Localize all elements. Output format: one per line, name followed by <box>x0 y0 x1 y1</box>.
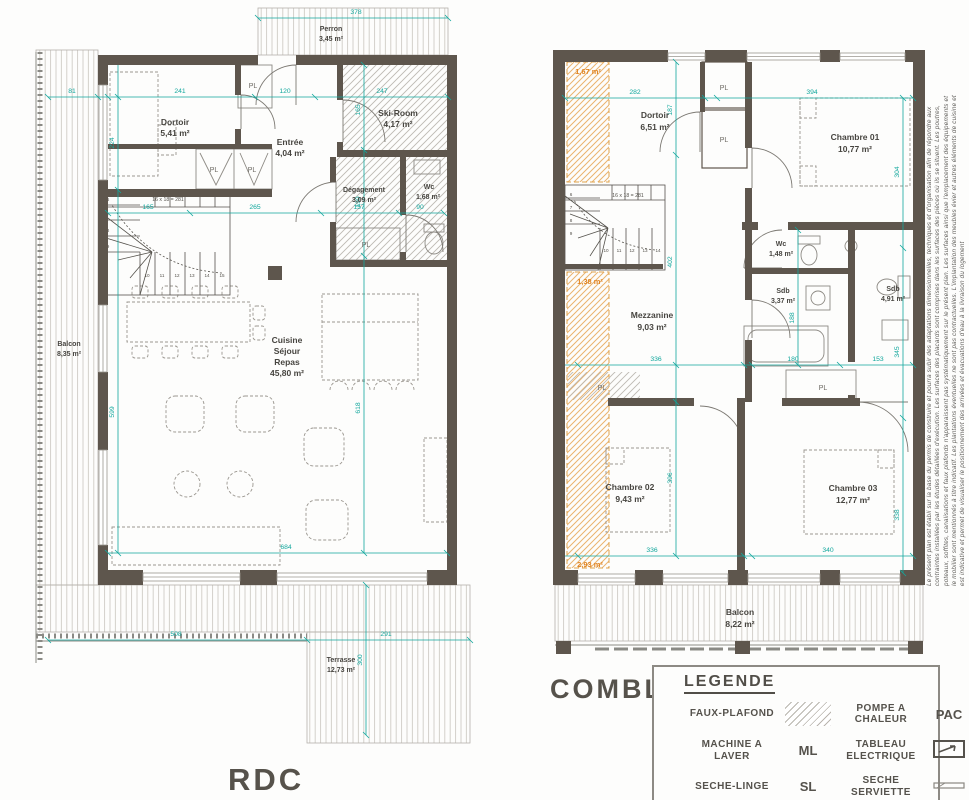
closet-label: PL <box>249 83 258 90</box>
room-area: 3,37 m² <box>771 298 796 305</box>
step-number: 10 <box>603 248 609 253</box>
bar-stools <box>330 381 414 390</box>
room-label: Sdb <box>886 286 899 293</box>
faux-plafond-area: 1,67 m² <box>575 67 601 76</box>
side-table-round <box>174 471 200 497</box>
legend-label: FAUX-PLAFOND <box>684 708 780 720</box>
room-label: Entrée <box>277 137 304 147</box>
dim: 81 <box>68 88 76 95</box>
toilet-tank <box>898 276 910 298</box>
armchair <box>306 500 348 540</box>
step-number: 12 <box>174 273 180 278</box>
legend-symbol: SL <box>780 779 836 794</box>
legend-title: LEGENDE <box>684 673 775 694</box>
room-label: Cuisine <box>272 335 303 345</box>
step-number: 14 <box>204 273 210 278</box>
room-area: 4,04 m² <box>275 148 304 158</box>
armchair <box>166 396 204 432</box>
terrace-deck-band <box>36 585 470 632</box>
dining-chairs <box>132 286 265 358</box>
towel-radiator-icon <box>926 779 969 794</box>
room-area: 4,17 m² <box>383 119 412 129</box>
dim: 599 <box>109 406 116 418</box>
dim: 684 <box>280 544 292 551</box>
disclaimer-text: Le présent plan est établi sur la base d… <box>926 38 967 586</box>
armchair <box>236 396 274 432</box>
terrace-deck-ext <box>307 632 470 743</box>
dim: 402 <box>667 256 674 268</box>
dim: 396 <box>667 472 674 484</box>
room-label: Balcon <box>726 607 754 617</box>
room-label: Ski-Room <box>378 108 418 118</box>
dim: 340 <box>822 547 834 554</box>
floor-plan-sheet: 16 x 18 = 281 6 7 8 9 10 11 12 13 14 15 <box>0 0 969 800</box>
faux-plafond-zones <box>567 62 609 568</box>
dim: 338 <box>894 509 901 521</box>
step-number: 12 <box>629 248 635 253</box>
rdc-plan: 16 x 18 = 281 6 7 8 9 10 11 12 13 14 15 <box>36 8 473 743</box>
rdc-stairs <box>100 190 230 295</box>
legend-label: SECHE SERVIETTE <box>836 775 926 798</box>
room-label: Perron <box>320 26 343 33</box>
dim: 188 <box>789 312 796 324</box>
dim: 224 <box>109 137 116 149</box>
room-area: 9,43 m² <box>615 494 644 504</box>
step-number: 11 <box>617 248 622 253</box>
combles-closets <box>702 62 747 168</box>
dim: 165 <box>355 104 362 116</box>
room-label: Wc <box>776 241 787 248</box>
legend-label: SECHE-LINGE <box>684 781 780 793</box>
dim: 165 <box>142 204 154 211</box>
legend-box: LEGENDE FAUX-PLAFOND POMPE A CHALEUR PAC… <box>652 665 940 800</box>
disclaimer-line: contraintes installées par les études dé… <box>934 38 942 586</box>
room-label: Chambre 02 <box>606 482 655 492</box>
kitchen-island <box>322 294 418 380</box>
room-area: 10,77 m² <box>838 144 872 154</box>
dim: 394 <box>806 89 818 96</box>
room-area: 1,68 m² <box>416 194 441 201</box>
step-number: 11 <box>160 273 165 278</box>
dim: 120 <box>279 88 291 95</box>
dim: 300 <box>357 654 364 666</box>
dim: 508 <box>170 631 182 638</box>
room-label: Wc <box>424 184 435 191</box>
step-number: 8 <box>570 218 573 223</box>
closet-label: PL <box>210 167 219 174</box>
combles-plan: 16 x 18 = 281 6 7 8 9 10 11 12 13 14 <box>553 50 925 654</box>
room-label: Sdb <box>776 288 789 295</box>
room-area: 8,22 m² <box>725 619 754 629</box>
room-label: Balcon <box>57 341 80 348</box>
dim: 291 <box>380 631 392 638</box>
room-area: 1,48 m² <box>769 251 794 258</box>
legend-label: TABLEAU ELECTRIQUE <box>836 739 926 762</box>
armchair <box>304 428 344 466</box>
disclaimer-line: est indicative et permet de visualiser l… <box>959 38 967 586</box>
room-area: 6,51 m² <box>640 122 669 132</box>
side-table-round <box>227 471 253 497</box>
room-area: 9,03 m² <box>637 322 666 332</box>
combles-stair-texts: 16 x 18 = 281 6 7 8 9 10 11 12 13 14 <box>570 192 661 253</box>
step-number: 6 <box>570 192 573 197</box>
room-label: Dortoir <box>161 117 190 127</box>
step-number: 13 <box>642 248 648 253</box>
step-number: 10 <box>144 273 150 278</box>
disclaimer-line: le mobilier sont mentionnés à titre indi… <box>951 38 959 586</box>
toilet-tank <box>798 236 820 244</box>
legend-symbol: PAC <box>926 707 969 722</box>
stair-note: 16 x 18 = 281 <box>612 193 644 199</box>
faux-plafond-area: 2,93 m² <box>577 560 603 569</box>
closet-label: PL <box>720 137 729 144</box>
dim: 247 <box>376 88 388 95</box>
balcony-deck <box>36 50 98 585</box>
step-number: 15 <box>219 273 225 278</box>
closet-label: PL <box>720 85 729 92</box>
closet-label: PL <box>598 385 607 392</box>
combles-fixtures <box>744 236 910 400</box>
dining-table <box>127 302 250 342</box>
room-area: 12,77 m² <box>836 495 870 505</box>
room-area: 8,35 m² <box>57 351 82 358</box>
disclaimer-line: poteaux, soffites, canalisations et faux… <box>943 38 951 586</box>
stair-note: 16 x 18 = 281 <box>152 197 184 203</box>
disclaimer-line: Le présent plan est établi sur la base d… <box>926 38 934 586</box>
room-area: 3,09 m² <box>352 197 377 204</box>
post <box>268 266 282 280</box>
room-label: Séjour <box>274 346 301 356</box>
sofa <box>112 527 280 565</box>
step-number: 7 <box>570 205 573 210</box>
faux-plafond-hatch-swatch <box>785 702 831 726</box>
room-label: Terrasse <box>327 657 356 664</box>
room-area: 3,45 m² <box>319 36 344 43</box>
dim: 241 <box>174 88 186 95</box>
legend-grid: FAUX-PLAFOND POMPE A CHALEUR PAC MACHINE… <box>684 702 938 800</box>
dim: 180 <box>787 356 799 363</box>
dim: 282 <box>629 89 641 96</box>
room-label: Dégagement <box>343 187 386 194</box>
step-number: 9 <box>570 231 573 236</box>
dim: 336 <box>650 356 662 363</box>
room-label: Chambre 03 <box>829 483 878 493</box>
bathtub <box>744 326 828 366</box>
rdc-stair-texts: 16 x 18 = 281 6 7 8 9 10 11 12 13 14 15 <box>107 197 225 278</box>
dim: 378 <box>350 9 362 16</box>
dim: 336 <box>646 547 658 554</box>
legend-symbol: ML <box>780 743 836 758</box>
faux-plafond-area: 1,38 m² <box>577 277 603 286</box>
dim: 153 <box>872 356 884 363</box>
room-area: 12,73 m² <box>327 667 356 674</box>
room-label: Repas <box>274 357 300 367</box>
toilet-bowl <box>801 245 817 265</box>
closet-label: PL <box>362 242 371 249</box>
kitchen-counter <box>424 438 447 522</box>
room-area: 5,41 m² <box>160 128 189 138</box>
dim: 345 <box>894 346 901 358</box>
washbasin <box>806 286 830 310</box>
legend-label: POMPE A CHALEUR <box>836 703 926 726</box>
dim: 618 <box>355 402 362 414</box>
rdc-title: RDC <box>228 762 304 798</box>
electrical-panel-icon <box>926 740 969 761</box>
dim: 90 <box>416 204 424 211</box>
washbasin <box>882 320 908 340</box>
legend-label: MACHINE A LAVER <box>684 739 780 762</box>
room-label: Mezzanine <box>631 310 674 320</box>
dortoir-bed <box>110 72 158 176</box>
room-area: 45,80 m² <box>270 368 304 378</box>
dim: 265 <box>249 204 261 211</box>
step-number: 13 <box>189 273 195 278</box>
closet-label: PL <box>248 167 257 174</box>
room-label: Dortoir <box>641 110 670 120</box>
room-area: 4,91 m² <box>881 296 906 303</box>
dim: 304 <box>894 166 901 178</box>
closet-label: PL <box>819 385 828 392</box>
room-label: Chambre 01 <box>831 132 880 142</box>
step-number: 14 <box>655 248 661 253</box>
